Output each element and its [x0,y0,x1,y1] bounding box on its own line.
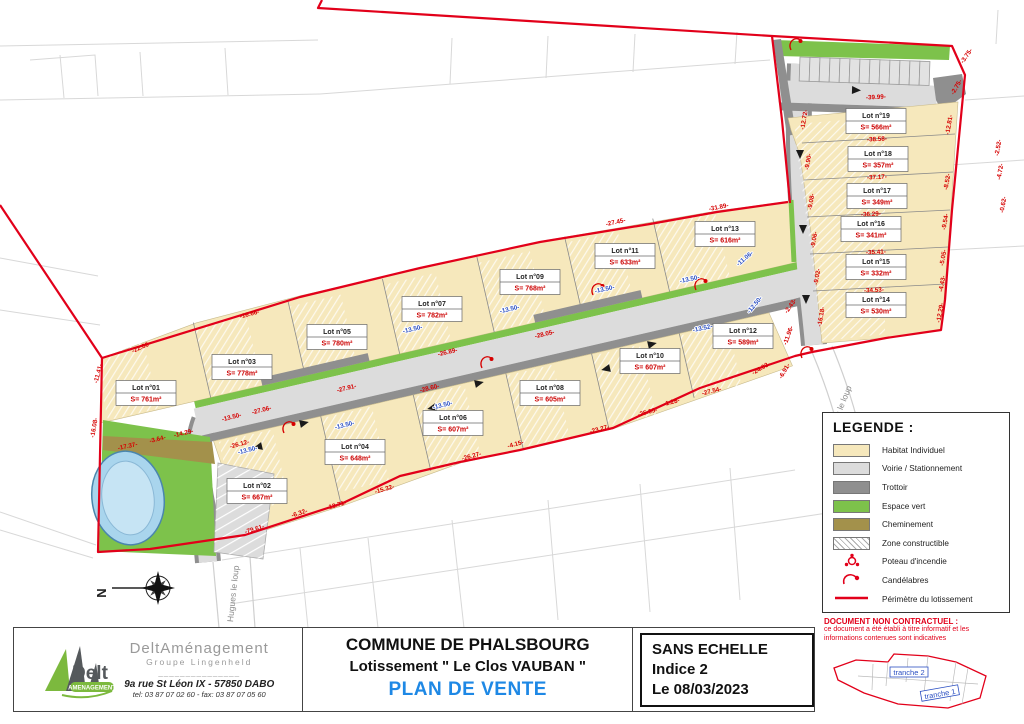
svg-text:Lot n°11: Lot n°11 [611,247,638,255]
svg-text:Lot n°05: Lot n°05 [323,328,351,336]
disclaimer-line2: informations contenues sont indicatives [824,635,1020,644]
dimension-label: -2.52- [994,139,1004,156]
svg-text:S= 357m²: S= 357m² [863,163,895,170]
legend-title: LEGENDE : [833,419,1001,435]
svg-text:S= 589m²: S= 589m² [728,340,760,347]
candelabra-icon [833,571,870,589]
tranche-2-label: tranche 2 [890,667,928,677]
cheminement-swatch [833,518,870,531]
dimension-label: -16.08- [89,417,99,438]
info-box: SANS ECHELLE Indice 2 Le 08/03/2023 [640,633,814,707]
lot-label: Lot n°04S= 648m² [325,440,385,465]
svg-text:S= 332m²: S= 332m² [861,271,893,278]
svg-text:Lot n°12: Lot n°12 [729,327,757,335]
svg-text:Lot n°08: Lot n°08 [536,384,564,392]
separator: _______________ [124,668,274,677]
svg-text:S= 607m²: S= 607m² [635,365,667,372]
legend-item-espace-vert: Espace vert [833,497,1001,516]
legend-item-trottoir: Trottoir [833,478,1001,497]
legend-item-habitat: Habitat Individuel [833,441,1001,460]
voirie-swatch [833,462,870,475]
lot-label: Lot n°13S= 616m² [695,222,755,247]
lot-label: Lot n°17S= 349m² [847,184,907,209]
svg-text:Lot n°04: Lot n°04 [341,443,369,451]
lot-label: Lot n°03S= 778m² [212,355,272,380]
svg-text:S= 341m²: S= 341m² [856,233,888,240]
svg-text:S= 566m²: S= 566m² [861,125,893,132]
lot-label: Lot n°15S= 332m² [846,255,906,280]
habitat-swatch [833,444,870,457]
svg-text:Lot n°07: Lot n°07 [418,300,446,308]
svg-text:S= 616m²: S= 616m² [710,238,742,245]
plan-document: N tranche 2 tranche 1 -22.86--11.41--16.… [0,0,1024,724]
dimension-label: -37.17- [867,173,887,181]
svg-text:S= 633m²: S= 633m² [610,260,642,267]
lot-label: Lot n°12S= 589m² [713,324,773,349]
svg-text:Lot n°10: Lot n°10 [636,352,664,360]
title-block: Delt AMENAGEMENT DeltAménagement Groupe … [13,627,815,712]
legend-item-cheminement: Cheminement [833,515,1001,534]
commune-title: COMMUNE DE PHALSBOURG [303,635,632,655]
svg-text:Lot n°18: Lot n°18 [864,150,892,158]
svg-text:Lot n°01: Lot n°01 [132,384,160,392]
north-arrow: N [94,571,175,605]
sw-parking-stalls [214,463,274,559]
perimeter-line-icon [833,593,870,605]
svg-text:Lot n°17: Lot n°17 [863,187,891,195]
disclaimer-title: DOCUMENT NON CONTRACTUEL : [824,617,1020,626]
info-cell: SANS ECHELLE Indice 2 Le 08/03/2023 [633,628,814,711]
svg-text:Lot n°09: Lot n°09 [516,273,544,281]
site-plan-drawing: N tranche 2 tranche 1 -22.86--11.41--16.… [0,0,1024,724]
delt-logo: Delt AMENAGEMENT [42,641,116,699]
lot-label: Lot n°09S= 768m² [500,270,560,295]
dimension-label: -4.72- [996,163,1006,180]
lotissement-title: Lotissement " Le Clos VAUBAN " [303,658,632,675]
svg-text:S= 607m²: S= 607m² [438,427,470,434]
lot-label: Lot n°11S= 633m² [595,244,655,269]
company-cell: Delt AMENAGEMENT DeltAménagement Groupe … [14,628,303,711]
svg-text:S= 780m²: S= 780m² [322,341,354,348]
lot-label: Lot n°08S= 605m² [520,381,580,406]
lot-label: Lot n°18S= 357m² [848,147,908,172]
dimension-label: -38.58- [867,135,887,143]
legend-item-poteau: Poteau d'incendie [833,553,1001,572]
svg-text:S= 667m²: S= 667m² [242,495,274,502]
parking-stalls [799,57,930,86]
lot-label: Lot n°19S= 566m² [846,109,906,134]
svg-text:tranche 2: tranche 2 [893,668,924,677]
svg-text:S= 768m²: S= 768m² [515,286,547,293]
lot-label: Lot n°06S= 607m² [423,411,483,436]
svg-text:Lot n°02: Lot n°02 [243,482,271,490]
dimension-label: -27.45- [605,217,626,228]
svg-text:Lot n°15: Lot n°15 [862,258,890,266]
company-phone: tel: 03 87 07 02 60 - fax: 03 87 07 05 6… [124,690,274,699]
svg-text:Lot n°16: Lot n°16 [857,220,885,228]
espace-vert-swatch [833,500,870,513]
legend-item-candelabre: Candélabres [833,571,1001,590]
fire-hydrant-icon [833,553,870,571]
lot-label: Lot n°01S= 761m² [116,381,176,406]
tranche-inset: tranche 2 tranche 1 [834,654,986,708]
dimension-label: -3.75- [959,47,974,64]
svg-text:AMENAGEMENT: AMENAGEMENT [68,685,116,691]
plan-de-vente-title: PLAN DE VENTE [303,679,632,701]
project-title-cell: COMMUNE DE PHALSBOURG Lotissement " Le C… [303,628,633,711]
svg-text:Lot n°19: Lot n°19 [862,112,890,120]
lot-label: Lot n°16S= 341m² [841,217,901,242]
lot-label: Lot n°10S= 607m² [620,349,680,374]
svg-text:Lot n°06: Lot n°06 [439,414,467,422]
scale-label: SANS ECHELLE [652,640,802,660]
disclaimer-line1: ce document a été établi à titre informa… [824,626,1020,635]
trottoir-swatch [833,481,870,494]
legend: LEGENDE : Habitat Individuel Voirie / St… [822,412,1010,613]
company-address: 9a rue St Léon IX - 57850 DABO [124,679,274,690]
road-name: Hugues le loup [225,565,241,623]
company-name: DeltAménagement [124,640,274,657]
svg-text:S= 349m²: S= 349m² [862,200,894,207]
north-label: N [94,588,109,597]
legend-item-voirie: Voirie / Stationnement [833,460,1001,479]
svg-text:S= 648m²: S= 648m² [340,456,372,463]
dimension-label: -0.62- [999,196,1009,213]
lot-label: Lot n°14S= 530m² [846,293,906,318]
lot-label: Lot n°05S= 780m² [307,325,367,350]
indice-label: Indice 2 [652,660,802,680]
date-label: Le 08/03/2023 [652,680,802,700]
disclaimer: DOCUMENT NON CONTRACTUEL : ce document a… [824,617,1020,643]
svg-text:S= 778m²: S= 778m² [227,371,259,378]
north-road-green-seg [791,200,794,262]
company-group: Groupe Lingenheld [124,657,274,667]
svg-text:Delt: Delt [72,663,109,684]
svg-text:S= 782m²: S= 782m² [417,313,449,320]
svg-text:S= 761m²: S= 761m² [131,397,163,404]
svg-text:Lot n°03: Lot n°03 [228,358,256,366]
svg-text:Lot n°14: Lot n°14 [862,296,890,304]
svg-text:S= 530m²: S= 530m² [861,309,893,316]
lot-label: Lot n°02S= 667m² [227,479,287,504]
dimension-label: -39.99- [866,93,886,101]
zone-constructible-swatch [833,537,870,550]
legend-item-perimetre: Périmètre du lotissement [833,590,1001,609]
svg-text:S= 605m²: S= 605m² [535,397,567,404]
lot-label: Lot n°07S= 782m² [402,297,462,322]
dimension-label: -11.96- [782,325,795,346]
svg-text:Lot n°13: Lot n°13 [711,225,739,233]
legend-item-zone-constructible: Zone constructible [833,534,1001,553]
